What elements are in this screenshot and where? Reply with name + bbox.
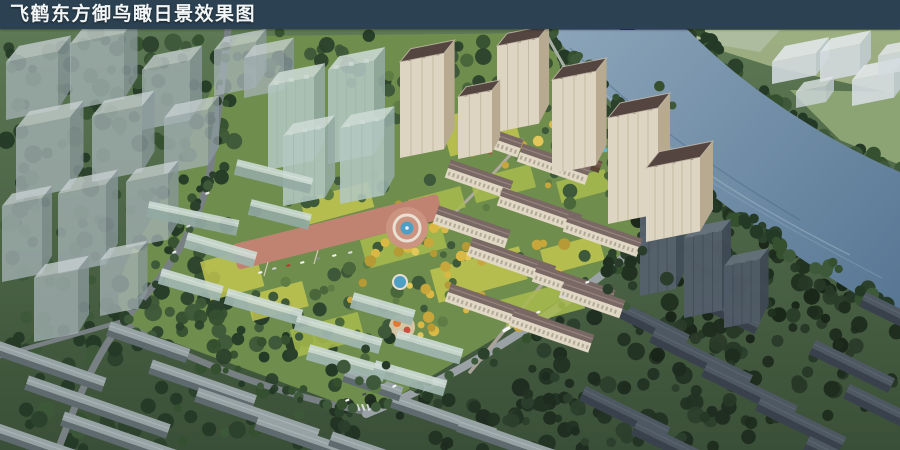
screenshot-root: 飞鹤东方御鸟瞰日景效果图 — [0, 0, 900, 450]
aerial-rendering — [0, 0, 900, 450]
pool — [393, 275, 407, 289]
page-title: 飞鹤东方御鸟瞰日景效果图 — [0, 0, 256, 29]
title-bar: 飞鹤东方御鸟瞰日景效果图 — [0, 0, 900, 29]
